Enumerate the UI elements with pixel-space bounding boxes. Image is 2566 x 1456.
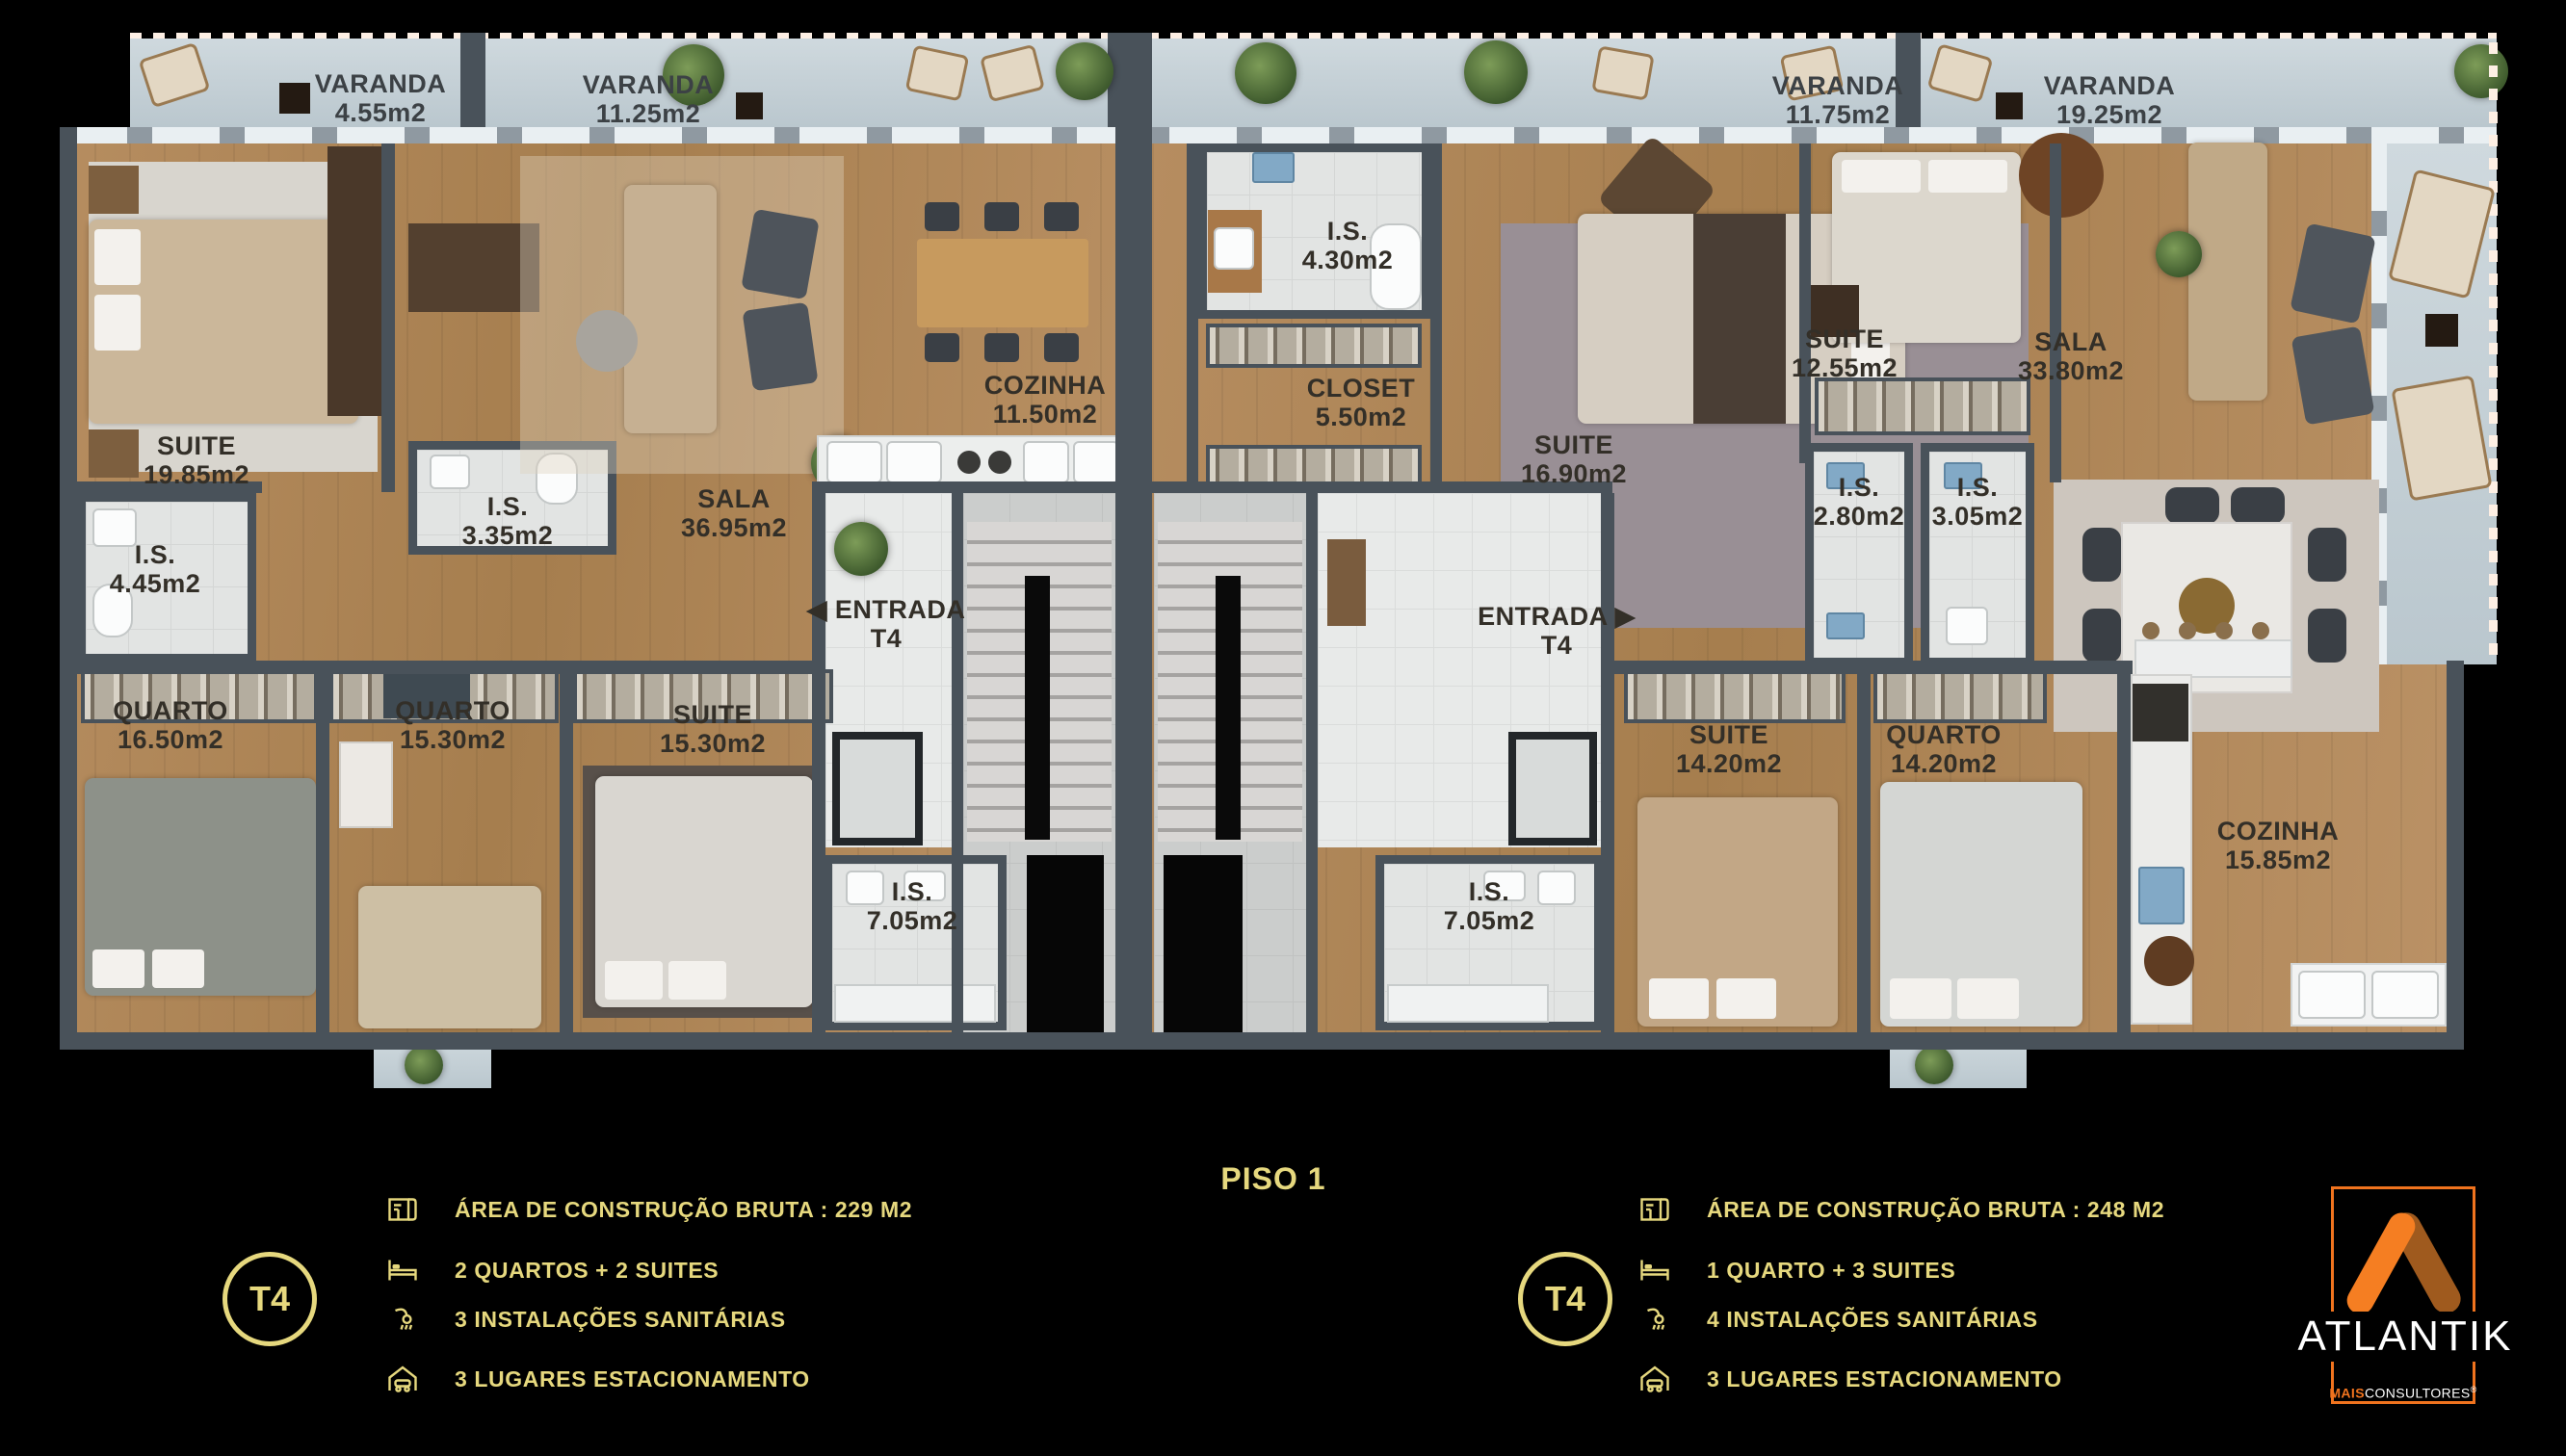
appliance xyxy=(2371,971,2439,1019)
pillow xyxy=(152,949,204,988)
armchair xyxy=(741,209,820,300)
wall xyxy=(1430,143,1442,493)
wall xyxy=(2117,661,2131,1050)
dining-chair xyxy=(2082,528,2121,582)
room-label-suite-14-20: SUITE 14.20m2 xyxy=(1676,720,1782,778)
room-label-varanda-b: VARANDA 11.25m2 xyxy=(583,70,715,128)
wall xyxy=(560,661,573,1050)
wall xyxy=(812,493,825,1050)
plant xyxy=(1464,40,1528,104)
toilet xyxy=(1946,607,1988,645)
pillow xyxy=(92,949,144,988)
wall xyxy=(2447,661,2464,1050)
brand-trademark: ® xyxy=(2471,1385,2477,1394)
wall xyxy=(1857,661,1871,1050)
appliance xyxy=(2298,971,2366,1019)
floor-title: PISO 1 xyxy=(1177,1161,1370,1197)
room-label-suite-16-90: SUITE 16.90m2 xyxy=(1521,430,1627,488)
legend-item-bathrooms: 4 INSTALAÇÕES SANITÁRIAS xyxy=(1707,1302,2038,1337)
room-label-cozinha-15-85: COZINHA 15.85m2 xyxy=(2217,817,2340,874)
nightstand xyxy=(89,166,139,214)
floorplan-icon xyxy=(385,1192,420,1227)
appliance xyxy=(1073,441,1119,483)
pillow xyxy=(1890,978,1951,1019)
wall xyxy=(1108,33,1152,127)
plant xyxy=(1915,1046,1953,1084)
room-label-is-4-45: I.S. 4.45m2 xyxy=(110,540,201,598)
stair-void xyxy=(1027,855,1104,1040)
dining-chair xyxy=(1044,333,1079,362)
stair-void xyxy=(1164,855,1243,1040)
sink xyxy=(1214,227,1254,270)
sink xyxy=(1537,871,1576,905)
wardrobe-cabinet xyxy=(327,146,381,416)
stool xyxy=(2179,622,2196,639)
legend-item-bedrooms: 1 QUARTO + 3 SUITES xyxy=(1707,1253,1955,1287)
sofa xyxy=(624,185,717,433)
dining-chair xyxy=(984,333,1019,362)
dining-chair xyxy=(2082,609,2121,663)
brand-subtitle-prefix: MAIS xyxy=(2329,1386,2365,1401)
bed xyxy=(358,886,541,1028)
shower-icon xyxy=(385,1302,420,1337)
room-label-sala-33-80: SALA 33.80m2 xyxy=(2018,327,2124,385)
dining-chair xyxy=(984,202,1019,231)
wall xyxy=(60,127,77,1050)
garage-icon xyxy=(385,1362,420,1396)
bed-icon xyxy=(1637,1253,1672,1287)
stair-stringer xyxy=(1216,576,1241,840)
round-rug xyxy=(2144,936,2194,986)
room-label-closet-5-50: CLOSET 5.50m2 xyxy=(1307,374,1416,431)
plant xyxy=(2454,44,2508,98)
dining-chair xyxy=(2165,487,2219,524)
cooktop-burner xyxy=(957,451,981,474)
armchair xyxy=(742,302,818,392)
dining-chair xyxy=(1044,202,1079,231)
legend-row xyxy=(1637,1192,1672,1227)
room-label-is-3-05: I.S. 3.05m2 xyxy=(1932,473,2024,531)
wardrobe xyxy=(1624,669,1846,723)
room-label-varanda-c: VARANDA 11.75m2 xyxy=(1772,71,1904,129)
floor-plan-canvas: VARANDA 4.55m2 VARANDA 11.25m2 VARANDA 1… xyxy=(0,0,2566,1456)
coffee-table xyxy=(576,310,638,372)
room-label-is-7-05-left: I.S. 7.05m2 xyxy=(867,877,958,935)
room-label-is-3-35: I.S. 3.35m2 xyxy=(462,492,554,550)
sink xyxy=(2138,867,2185,924)
side-table xyxy=(279,83,310,114)
legend-item-bathrooms: 3 INSTALAÇÕES SANITÁRIAS xyxy=(455,1302,786,1337)
wall xyxy=(952,493,963,1040)
room-label-is-2-80: I.S. 2.80m2 xyxy=(1814,473,1905,531)
pillow xyxy=(1928,160,2007,193)
room-label-cozinha-11-50: COZINHA 11.50m2 xyxy=(984,371,1107,429)
wall xyxy=(60,661,825,674)
plant xyxy=(1056,42,1113,100)
pillow xyxy=(668,961,726,1000)
room-label-varanda-a: VARANDA 4.55m2 xyxy=(315,69,447,127)
plant xyxy=(2156,231,2202,277)
floorplan-icon xyxy=(1637,1192,1672,1227)
room-label-entrada-left: ◀ ENTRADA T4 xyxy=(807,595,966,653)
plant xyxy=(834,522,888,576)
wardrobe xyxy=(1873,669,2047,723)
pillow xyxy=(1716,978,1776,1019)
dining-chair xyxy=(925,333,959,362)
dining-chair xyxy=(925,202,959,231)
appliance xyxy=(886,441,942,483)
wall xyxy=(1152,1032,2464,1050)
shower-icon xyxy=(1637,1302,1672,1337)
wall xyxy=(1601,493,1614,1050)
console xyxy=(1327,539,1366,626)
appliance xyxy=(826,441,882,483)
wall xyxy=(1187,143,1198,493)
wall xyxy=(460,33,485,127)
dining-chair xyxy=(2231,487,2285,524)
round-table xyxy=(2019,133,2104,218)
wall xyxy=(2050,143,2061,482)
shower xyxy=(834,984,996,1023)
garage-icon xyxy=(1637,1362,1672,1396)
room-label-suite-12-55: SUITE 12.55m2 xyxy=(1792,325,1898,382)
plant xyxy=(1235,42,1296,104)
wall xyxy=(1612,661,2133,674)
nightstand xyxy=(89,429,139,478)
wall xyxy=(1115,127,1152,1050)
room-label-entrada-right: ENTRADA ▶ T4 xyxy=(1478,602,1636,660)
legend-row xyxy=(1637,1253,1672,1287)
elevator xyxy=(832,732,923,845)
legend-row xyxy=(1637,1302,1672,1337)
room-label-suite-19-85: SUITE 19.85m2 xyxy=(144,431,249,489)
legend-item-area: ÁREA DE CONSTRUÇÃO BRUTA : 248 M2 xyxy=(1707,1192,2164,1227)
unit-type-badge-left: T4 xyxy=(223,1252,317,1346)
dining-chair xyxy=(2308,528,2346,582)
cooktop xyxy=(2133,684,2188,741)
dining-chair xyxy=(2308,609,2346,663)
legend-item-parking: 3 LUGARES ESTACIONAMENTO xyxy=(1707,1362,2062,1396)
stool xyxy=(2142,622,2160,639)
room-label-varanda-d: VARANDA 19.25m2 xyxy=(2044,71,2176,129)
sink xyxy=(1826,612,1865,639)
pillow xyxy=(1649,978,1709,1019)
wall xyxy=(1799,143,1811,463)
sofa xyxy=(2188,143,2267,401)
cooktop-burner xyxy=(988,451,1011,474)
shower xyxy=(1387,984,1549,1023)
side-table xyxy=(2425,314,2458,347)
legend-item-parking: 3 LUGARES ESTACIONAMENTO xyxy=(455,1362,810,1396)
legend-row xyxy=(1637,1362,1672,1396)
window-wall xyxy=(60,127,2497,143)
pillow xyxy=(605,961,663,1000)
unit-type-badge-right: T4 xyxy=(1518,1252,1612,1346)
stair-stringer xyxy=(1025,576,1050,840)
brand-subtitle-suffix: CONSULTORES xyxy=(2365,1386,2471,1401)
room-label-is-4-30: I.S. 4.30m2 xyxy=(1302,217,1394,274)
dining-table xyxy=(917,239,1088,327)
legend-row xyxy=(385,1362,420,1396)
brand-name: ATLANTIK xyxy=(2269,1312,2541,1362)
stool xyxy=(2252,622,2269,639)
stool xyxy=(2215,622,2233,639)
wall xyxy=(381,143,395,492)
lounger xyxy=(1591,45,1654,100)
sink xyxy=(1252,152,1295,183)
appliance xyxy=(1023,441,1069,483)
legend-row xyxy=(385,1253,420,1287)
elevator xyxy=(1508,732,1597,845)
bed-icon xyxy=(385,1253,420,1287)
dresser xyxy=(339,741,393,828)
wardrobe xyxy=(1815,377,2030,435)
pillow xyxy=(1957,978,2019,1019)
pillow xyxy=(1842,160,1921,193)
room-label-suite-15-30: SUITE 15.30m2 xyxy=(660,700,766,758)
closet-rack xyxy=(1206,324,1422,368)
room-label-quarto-14-20: QUARTO 14.20m2 xyxy=(1886,720,2002,778)
sink xyxy=(430,455,470,489)
brand-subtitle: MAISCONSULTORES® xyxy=(2325,1385,2481,1401)
side-table xyxy=(736,92,763,119)
legend-item-bedrooms: 2 QUARTOS + 2 SUITES xyxy=(455,1253,719,1287)
legend-row xyxy=(385,1192,420,1227)
wall xyxy=(812,481,1127,493)
wall xyxy=(316,661,329,1050)
kitchen-island xyxy=(2134,639,2292,678)
terrace-railing xyxy=(2489,42,2498,664)
pillow xyxy=(94,295,141,351)
wall xyxy=(1306,493,1318,1040)
plant xyxy=(405,1046,443,1084)
wall xyxy=(60,1032,1127,1050)
pillow xyxy=(94,229,141,285)
legend-item-area: ÁREA DE CONSTRUÇÃO BRUTA : 229 M2 xyxy=(455,1192,912,1227)
room-label-sala-36-95: SALA 36.95m2 xyxy=(681,484,787,542)
room-label-is-7-05-right: I.S. 7.05m2 xyxy=(1444,877,1535,935)
side-table xyxy=(1996,92,2023,119)
bed-throw xyxy=(1693,214,1786,424)
room-label-quarto-15-30: QUARTO 15.30m2 xyxy=(395,696,511,754)
legend-row xyxy=(385,1302,420,1337)
room-label-quarto-16-50: QUARTO 16.50m2 xyxy=(113,696,228,754)
